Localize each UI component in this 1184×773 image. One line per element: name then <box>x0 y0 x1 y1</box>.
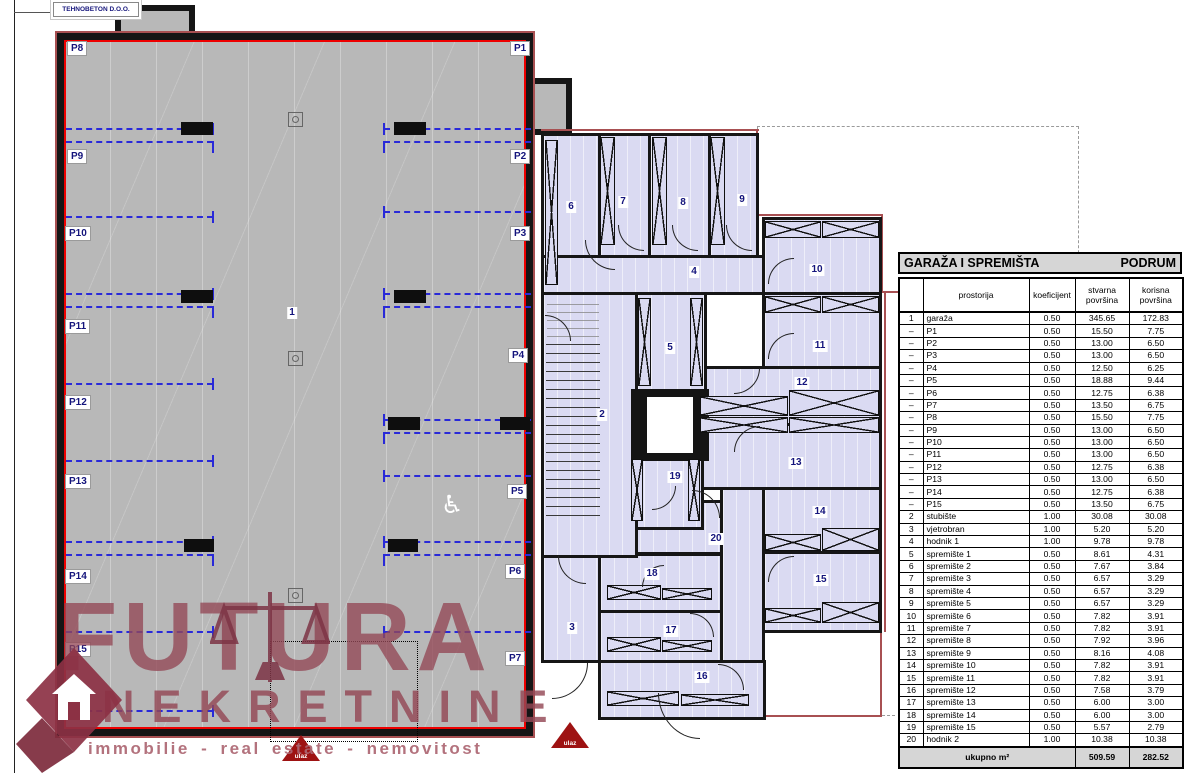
table-cell: 0.50 <box>1029 697 1075 709</box>
table-cell: 1.00 <box>1029 536 1075 548</box>
shelf-symbol <box>822 296 879 313</box>
table-cell: 7.82 <box>1075 659 1129 671</box>
table-row: 8spremište 40.506.573.29 <box>899 585 1183 597</box>
building-outline <box>762 715 882 717</box>
table-row: –P50.5018.889.44 <box>899 374 1183 386</box>
table-title-left: GARAŽA I SPREMIŠTA <box>904 256 1039 270</box>
parking-divider <box>384 475 531 477</box>
title-block-company: TEHNOBETON D.O.O. <box>53 2 139 17</box>
room-label-11: 11 <box>813 340 828 352</box>
wheelchair-icon: ♿ <box>441 490 463 519</box>
table-cell: P1 <box>923 325 1029 337</box>
room-label-7: 7 <box>618 196 628 208</box>
room-label-20: 20 <box>708 533 723 545</box>
table-cell: 12.75 <box>1075 461 1129 473</box>
table-cell: – <box>899 412 923 424</box>
table-cell: 0.50 <box>1029 610 1075 622</box>
table-cell: 6.25 <box>1129 362 1183 374</box>
table-row: 19spremište 150.505.572.79 <box>899 721 1183 733</box>
table-cell: 3.29 <box>1129 573 1183 585</box>
table-cell: 13.00 <box>1075 424 1129 436</box>
table-cell: 0.50 <box>1029 424 1075 436</box>
parking-divider-tick <box>212 455 214 467</box>
parking-divider-tick <box>212 211 214 223</box>
shelf-symbol <box>545 140 558 285</box>
table-cell: P3 <box>923 350 1029 362</box>
table-cell: 14 <box>899 659 923 671</box>
parking-label-p11: P11 <box>65 319 90 334</box>
table-cell: 4.31 <box>1129 548 1183 560</box>
table-cell: 13.00 <box>1075 337 1129 349</box>
table-cell: 6.50 <box>1129 474 1183 486</box>
parking-divider <box>66 216 213 218</box>
table-cell: 1.00 <box>1029 734 1075 747</box>
room-label-4: 4 <box>689 266 699 278</box>
table-cell: 8.16 <box>1075 647 1129 659</box>
column-pier <box>394 290 426 303</box>
table-row: –P90.5013.006.50 <box>899 424 1183 436</box>
table-cell: 0.50 <box>1029 350 1075 362</box>
table-cell: 13.50 <box>1075 498 1129 510</box>
parking-divider <box>66 306 213 308</box>
table-cell: 0.50 <box>1029 709 1075 721</box>
shelf-symbol <box>710 137 725 245</box>
door-arc <box>658 693 700 739</box>
shelf-symbol <box>631 459 643 521</box>
elevator-cabin <box>647 397 693 453</box>
shelf-symbol <box>662 588 712 600</box>
table-cell: 2 <box>899 511 923 523</box>
column-pier <box>388 539 418 552</box>
shelf-symbol <box>600 137 615 245</box>
table-row: –P140.5012.756.38 <box>899 486 1183 498</box>
table-cell: 6.50 <box>1129 436 1183 448</box>
table-cell: – <box>899 350 923 362</box>
column-pier <box>181 290 213 303</box>
parking-divider-tick <box>383 414 385 426</box>
room-label-19: 19 <box>667 471 682 483</box>
parking-label-p9: P9 <box>67 149 87 164</box>
table-cell: spremište 1 <box>923 548 1029 560</box>
table-cell: 7.82 <box>1075 672 1129 684</box>
table-cell: 2.79 <box>1129 721 1183 733</box>
table-row: 15spremište 110.507.823.91 <box>899 672 1183 684</box>
table-cell: 17 <box>899 697 923 709</box>
table-cell: P4 <box>923 362 1029 374</box>
door-arc <box>692 490 720 518</box>
table-cell: 3.29 <box>1129 585 1183 597</box>
table-cell: 4.08 <box>1129 647 1183 659</box>
table-row: 16spremište 120.507.583.79 <box>899 684 1183 696</box>
parking-label-p4: P4 <box>508 348 528 363</box>
table-cell: 6.50 <box>1129 350 1183 362</box>
table-cell: 13.00 <box>1075 436 1129 448</box>
table-row: 4hodnik 11.009.789.78 <box>899 536 1183 548</box>
col-header-korisna: korisna površina <box>1129 278 1183 312</box>
table-row: –P60.5012.756.38 <box>899 387 1183 399</box>
table-cell: – <box>899 325 923 337</box>
table-cell: 5.57 <box>1075 721 1129 733</box>
footer-total-stvarna: 509.59 <box>1075 747 1129 768</box>
table-cell: 0.50 <box>1029 449 1075 461</box>
room-label-15: 15 <box>813 574 828 586</box>
table-cell: P7 <box>923 399 1029 411</box>
table-cell: 20 <box>899 734 923 747</box>
table-cell: P15 <box>923 498 1029 510</box>
table-cell: P5 <box>923 374 1029 386</box>
table-cell: spremište 15 <box>923 721 1029 733</box>
watermark-tagline: immobilie - real estate - nemovitost <box>88 740 482 757</box>
table-title-bar: GARAŽA I SPREMIŠTA PODRUM <box>898 252 1182 274</box>
table-cell: 6.50 <box>1129 449 1183 461</box>
building-outline <box>884 293 886 632</box>
column-pier <box>388 417 420 430</box>
table-cell: 0.50 <box>1029 486 1075 498</box>
table-row: –P70.5013.506.75 <box>899 399 1183 411</box>
table-cell: 0.50 <box>1029 548 1075 560</box>
table-cell: 5.20 <box>1129 523 1183 535</box>
parking-label-p2: P2 <box>510 149 530 164</box>
table-row: 20hodnik 21.0010.3810.38 <box>899 734 1183 747</box>
parking-divider-tick <box>383 432 385 444</box>
table-cell: 3.91 <box>1129 610 1183 622</box>
table-cell: 8.61 <box>1075 548 1129 560</box>
table-cell: P12 <box>923 461 1029 473</box>
table-row: 9spremište 50.506.573.29 <box>899 597 1183 609</box>
table-cell: 13.50 <box>1075 399 1129 411</box>
table-cell: P14 <box>923 486 1029 498</box>
shelf-symbol <box>607 585 661 600</box>
table-cell: 3.00 <box>1129 709 1183 721</box>
watermark-subtitle: NEKRETNINE <box>102 684 565 729</box>
parking-divider <box>384 141 531 143</box>
table-row: 14spremište 100.507.823.91 <box>899 659 1183 671</box>
parking-divider-tick <box>383 288 385 300</box>
table-cell: 12.50 <box>1075 362 1129 374</box>
room-label-6: 6 <box>566 201 576 213</box>
table-cell: – <box>899 337 923 349</box>
footer-label: ukupno m² <box>899 747 1075 768</box>
table-cell: 1 <box>899 312 923 325</box>
table-cell: 0.50 <box>1029 585 1075 597</box>
shelf-symbol <box>789 417 879 433</box>
parking-divider-tick <box>212 141 214 153</box>
table-row: 11spremište 70.507.823.91 <box>899 622 1183 634</box>
parking-label-p6: P6 <box>505 564 525 579</box>
parking-divider-tick <box>383 206 385 218</box>
shelf-symbol <box>765 221 821 238</box>
stairs <box>546 338 600 516</box>
title-block-line <box>14 12 52 13</box>
building-outline <box>757 214 883 216</box>
table-cell: 0.50 <box>1029 647 1075 659</box>
shelf-symbol <box>662 640 712 652</box>
table-cell: 172.83 <box>1129 312 1183 325</box>
table-cell: 5 <box>899 548 923 560</box>
table-cell: – <box>899 362 923 374</box>
table-row: 7spremište 30.506.573.29 <box>899 573 1183 585</box>
table-row: –P110.5013.006.50 <box>899 449 1183 461</box>
table-cell: 0.50 <box>1029 387 1075 399</box>
room-label-13: 13 <box>788 457 803 469</box>
parking-divider-tick <box>383 536 385 548</box>
table-cell: P10 <box>923 436 1029 448</box>
area-data-table: prostorija koeficijent stvarna površina … <box>898 277 1184 769</box>
table-cell: – <box>899 449 923 461</box>
table-cell: 3.96 <box>1129 635 1183 647</box>
parking-label-p7: P7 <box>505 651 525 666</box>
table-cell: 13.00 <box>1075 474 1129 486</box>
col-header-koeficijent: koeficijent <box>1029 278 1075 312</box>
table-cell: 0.50 <box>1029 498 1075 510</box>
table-cell: 10.38 <box>1075 734 1129 747</box>
parking-label-p10: P10 <box>65 226 91 241</box>
table-row: –P30.5013.006.50 <box>899 350 1183 362</box>
room-label-16: 16 <box>694 671 709 683</box>
table-cell: 7 <box>899 573 923 585</box>
table-cell: 7.92 <box>1075 635 1129 647</box>
table-cell: 0.50 <box>1029 672 1075 684</box>
shelf-symbol <box>765 296 821 313</box>
table-cell: P2 <box>923 337 1029 349</box>
table-row: –P40.5012.506.25 <box>899 362 1183 374</box>
table-cell: 12 <box>899 635 923 647</box>
table-cell: P8 <box>923 412 1029 424</box>
parking-divider <box>66 460 213 462</box>
room-label-17: 17 <box>663 625 678 637</box>
area-table: GARAŽA I SPREMIŠTA PODRUM prostorija koe… <box>898 252 1182 769</box>
table-cell: spremište 10 <box>923 659 1029 671</box>
table-row: 5spremište 10.508.614.31 <box>899 548 1183 560</box>
table-cell: P9 <box>923 424 1029 436</box>
table-cell: spremište 2 <box>923 560 1029 572</box>
table-row: 18spremište 140.506.003.00 <box>899 709 1183 721</box>
table-cell: 6.38 <box>1129 486 1183 498</box>
table-cell: 13 <box>899 647 923 659</box>
table-cell: 7.67 <box>1075 560 1129 572</box>
parking-label-p5: P5 <box>507 484 527 499</box>
shelf-symbol <box>690 298 703 386</box>
table-cell: spremište 9 <box>923 647 1029 659</box>
realtor-logo-diamond <box>12 648 122 773</box>
table-cell: stubište <box>923 511 1029 523</box>
table-cell: 8 <box>899 585 923 597</box>
table-row: –P150.5013.506.75 <box>899 498 1183 510</box>
table-cell: 6.75 <box>1129 399 1183 411</box>
table-cell: 0.50 <box>1029 474 1075 486</box>
room-label-3: 3 <box>567 622 577 634</box>
table-cell: spremište 6 <box>923 610 1029 622</box>
parking-divider-tick <box>383 554 385 566</box>
table-cell: – <box>899 387 923 399</box>
parking-divider-tick <box>212 554 214 566</box>
table-cell: spremište 14 <box>923 709 1029 721</box>
watermark-scales-icon <box>210 590 330 685</box>
parking-label-p1: P1 <box>510 41 530 56</box>
col-header-stvarna: stvarna površina <box>1075 278 1129 312</box>
parking-divider <box>66 554 213 556</box>
shelf-symbol <box>765 534 821 551</box>
table-cell: spremište 11 <box>923 672 1029 684</box>
parking-divider-tick <box>212 378 214 390</box>
table-cell: 0.50 <box>1029 659 1075 671</box>
table-row: –P100.5013.006.50 <box>899 436 1183 448</box>
room-label-5: 5 <box>665 342 675 354</box>
column-pier <box>394 122 426 135</box>
footer-total-korisna: 282.52 <box>1129 747 1183 768</box>
table-cell: 10.38 <box>1129 734 1183 747</box>
table-cell: 9.78 <box>1075 536 1129 548</box>
building-outline <box>541 129 759 131</box>
table-row: –P20.5013.006.50 <box>899 337 1183 349</box>
table-cell: 0.50 <box>1029 362 1075 374</box>
parking-divider <box>384 432 531 434</box>
table-cell: 6 <box>899 560 923 572</box>
shelf-symbol <box>822 602 879 623</box>
col-header-num <box>899 278 923 312</box>
table-cell: 3.00 <box>1129 697 1183 709</box>
table-row: –P80.5015.507.75 <box>899 412 1183 424</box>
table-cell: 7.82 <box>1075 610 1129 622</box>
parking-divider <box>66 383 213 385</box>
room-label-18: 18 <box>644 568 659 580</box>
parking-divider-tick <box>383 470 385 482</box>
table-row: 10spremište 60.507.823.91 <box>899 610 1183 622</box>
table-cell: 19 <box>899 721 923 733</box>
column-pier <box>181 122 213 135</box>
table-cell: 11 <box>899 622 923 634</box>
table-cell: 0.50 <box>1029 436 1075 448</box>
parking-divider-tick <box>383 123 385 135</box>
table-title-right: PODRUM <box>1120 256 1176 270</box>
table-cell: 10 <box>899 610 923 622</box>
table-row: 17spremište 130.506.003.00 <box>899 697 1183 709</box>
room-label-10: 10 <box>809 264 824 276</box>
parking-label-p8: P8 <box>67 41 87 56</box>
table-cell: 0.50 <box>1029 325 1075 337</box>
table-cell: 6.75 <box>1129 498 1183 510</box>
table-cell: 3.91 <box>1129 672 1183 684</box>
table-row: 6spremište 20.507.673.84 <box>899 560 1183 572</box>
parking-divider <box>384 211 531 213</box>
table-cell: 12.75 <box>1075 387 1129 399</box>
table-cell: 1.00 <box>1029 523 1075 535</box>
shelf-symbol <box>765 608 821 623</box>
parking-label-p13: P13 <box>65 474 91 489</box>
building-outline <box>880 630 882 717</box>
table-cell: 12.75 <box>1075 486 1129 498</box>
table-cell: 0.50 <box>1029 374 1075 386</box>
table-row: –P120.5012.756.38 <box>899 461 1183 473</box>
table-cell: 7.75 <box>1129 412 1183 424</box>
room-hallway-4 <box>541 255 765 295</box>
shelf-symbol <box>822 221 879 238</box>
table-cell: 0.50 <box>1029 573 1075 585</box>
parking-divider-tick <box>383 306 385 318</box>
room-label-9: 9 <box>737 194 747 206</box>
table-cell: 13.00 <box>1075 350 1129 362</box>
table-cell: 0.50 <box>1029 635 1075 647</box>
table-cell: – <box>899 486 923 498</box>
table-cell: 9 <box>899 597 923 609</box>
table-cell: 6.57 <box>1075 585 1129 597</box>
table-cell: 6.00 <box>1075 709 1129 721</box>
floor-drain-icon <box>288 112 303 127</box>
table-cell: P13 <box>923 474 1029 486</box>
table-cell: P6 <box>923 387 1029 399</box>
table-cell: spremište 4 <box>923 585 1029 597</box>
table-cell: 0.50 <box>1029 684 1075 696</box>
table-cell: 3.79 <box>1129 684 1183 696</box>
shelf-symbol <box>652 137 667 245</box>
table-cell: 3.84 <box>1129 560 1183 572</box>
col-header-prostorija: prostorija <box>923 278 1029 312</box>
table-cell: 3 <box>899 523 923 535</box>
table-cell: spremište 5 <box>923 597 1029 609</box>
table-cell: 0.50 <box>1029 721 1075 733</box>
table-cell: 18 <box>899 709 923 721</box>
company-name: TEHNOBETON D.O.O. <box>62 6 129 13</box>
table-cell: 30.08 <box>1075 511 1129 523</box>
garage-right-shaft <box>533 78 572 135</box>
table-cell: 6.50 <box>1129 424 1183 436</box>
floor-plan-page: TEHNOBETON D.O.O. <box>0 0 1184 773</box>
table-cell: vjetrobran <box>923 523 1029 535</box>
room-label-1: 1 <box>287 307 297 319</box>
table-cell: 18.88 <box>1075 374 1129 386</box>
column-pier <box>184 539 214 552</box>
parking-divider <box>384 306 531 308</box>
table-cell: spremište 3 <box>923 573 1029 585</box>
shelf-symbol <box>789 390 879 416</box>
table-cell: 6.00 <box>1075 697 1129 709</box>
shelf-symbol <box>700 396 788 416</box>
table-cell: 0.50 <box>1029 560 1075 572</box>
table-cell: 1.00 <box>1029 511 1075 523</box>
table-cell: 6.38 <box>1129 461 1183 473</box>
table-cell: 16 <box>899 684 923 696</box>
table-cell: – <box>899 461 923 473</box>
table-cell: 7.82 <box>1075 622 1129 634</box>
parking-divider <box>66 141 213 143</box>
table-cell: – <box>899 474 923 486</box>
table-cell: 6.57 <box>1075 573 1129 585</box>
parking-label-p3: P3 <box>510 226 530 241</box>
table-cell: 6.38 <box>1129 387 1183 399</box>
table-cell: 7.75 <box>1129 325 1183 337</box>
table-cell: 0.50 <box>1029 622 1075 634</box>
table-cell: 5.20 <box>1075 523 1129 535</box>
room-label-12: 12 <box>794 377 809 389</box>
parking-label-p12: P12 <box>65 395 91 410</box>
table-cell: spremište 13 <box>923 697 1029 709</box>
table-footer-row: ukupno m² 509.59 282.52 <box>899 747 1183 768</box>
shelf-symbol <box>638 298 651 386</box>
table-cell: 6.57 <box>1075 597 1129 609</box>
shelf-symbol <box>822 528 879 551</box>
table-row: 12spremište 80.507.923.96 <box>899 635 1183 647</box>
table-cell: spremište 12 <box>923 684 1029 696</box>
table-row: 2stubište1.0030.0830.08 <box>899 511 1183 523</box>
table-cell: 4 <box>899 536 923 548</box>
table-cell: 0.50 <box>1029 399 1075 411</box>
table-cell: – <box>899 424 923 436</box>
table-cell: 3.91 <box>1129 659 1183 671</box>
table-row: –P130.5013.006.50 <box>899 474 1183 486</box>
column-pier <box>500 417 530 430</box>
table-row: 3vjetrobran1.005.205.20 <box>899 523 1183 535</box>
table-cell: hodnik 1 <box>923 536 1029 548</box>
